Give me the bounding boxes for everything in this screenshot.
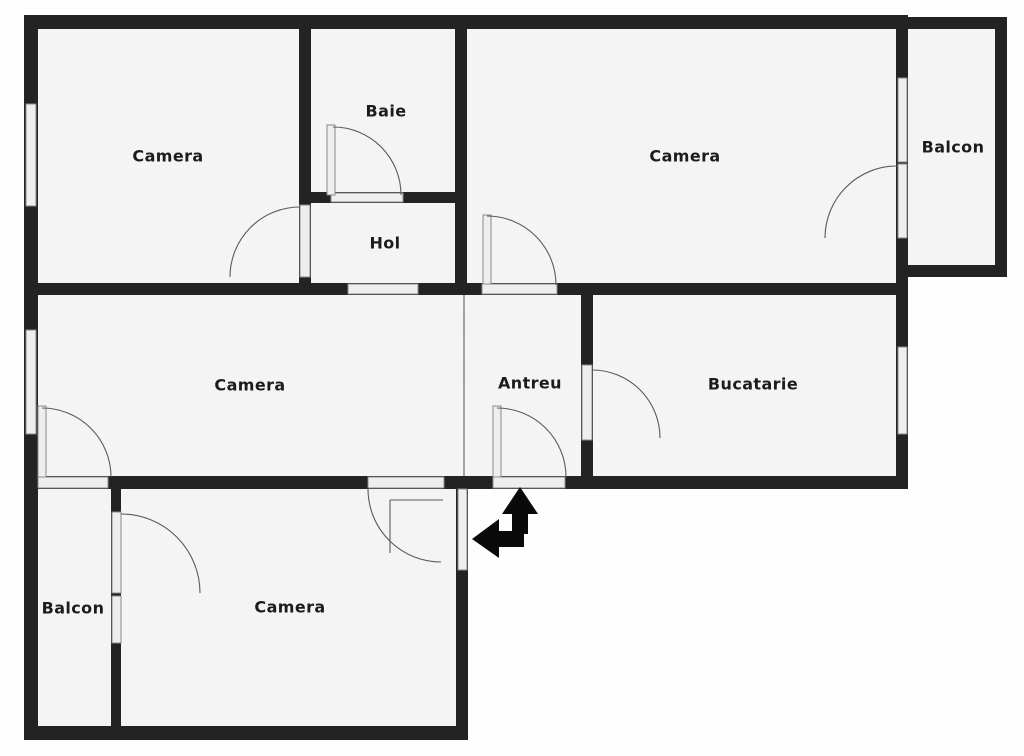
window-balcony-bl [112, 596, 121, 643]
wall-hol-camera-tr [455, 29, 467, 295]
room-label-camera-top-right: Camera [649, 147, 720, 166]
window-left-middle [26, 330, 36, 434]
room-label-balcon-bottom-left: Balcon [42, 599, 105, 618]
door-threshold-entrance [493, 477, 565, 488]
door-threshold-antreu-camera [482, 284, 557, 294]
wall-balcony-tr-top [908, 17, 1007, 29]
room-label-balcon-top-right: Balcon [922, 138, 985, 157]
room-label-bucatarie: Bucatarie [708, 375, 798, 394]
window-bucatarie-right [898, 347, 907, 434]
door-leaf-entrance [493, 406, 501, 477]
door-threshold-balcony-mid [38, 477, 108, 488]
floor-plan: TARCO [0, 0, 1024, 756]
wall-balcony-tr-right [995, 17, 1007, 277]
opening-hol-camera-middle [348, 284, 418, 294]
room-label-hol: Hol [369, 234, 400, 253]
window-balcony-tr [898, 78, 907, 162]
room-label-camera-bottom: Camera [254, 598, 325, 617]
wall-bottom-outer [24, 726, 468, 740]
door-leaf-balcony-mid [38, 406, 46, 477]
window-left-upper [26, 104, 36, 206]
window-camera-bottom-right [458, 489, 467, 570]
wall-balcony-tr-bottom [897, 265, 1007, 277]
door-leaf-balcony-tr [898, 164, 907, 238]
wall-divider-upper [24, 283, 908, 295]
wall-divider-lower [24, 476, 908, 489]
door-leaf-baie [327, 125, 335, 195]
room-label-antreu: Antreu [498, 374, 562, 393]
room-label-camera-top-left: Camera [132, 147, 203, 166]
wall-top-outer [24, 15, 908, 29]
entrance-up-arrow-icon [502, 487, 538, 534]
door-leaf-balcony-bl [112, 512, 121, 593]
door-threshold-camera-bottom [368, 477, 444, 488]
entrance-arrows [472, 487, 538, 558]
door-leaf-hol-camera [300, 205, 310, 277]
room-label-camera-middle: Camera [214, 376, 285, 395]
door-threshold-baie [331, 193, 403, 202]
room-label-baie: Baie [366, 102, 407, 121]
door-leaf-antreu-camera [483, 215, 491, 284]
door-leaf-bucatarie [582, 365, 592, 440]
